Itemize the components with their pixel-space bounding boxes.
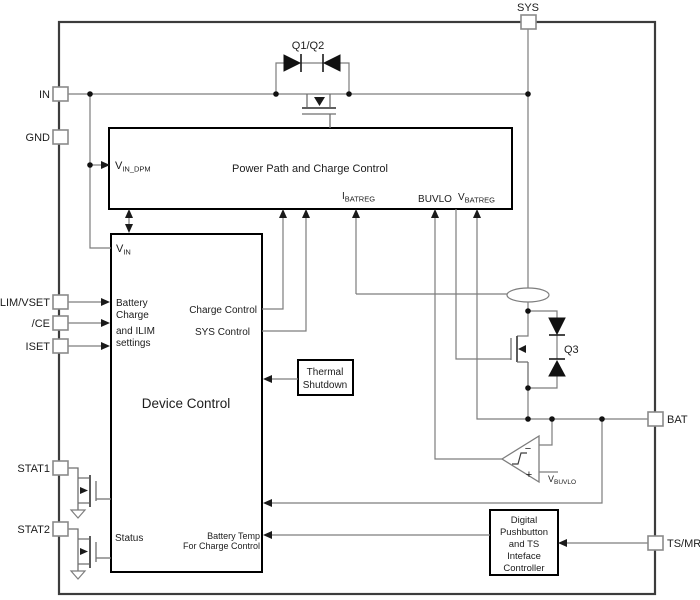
arrowhead-icon: [125, 224, 133, 233]
current-sense-ellipse-icon: [507, 288, 549, 302]
battery-temp-label-line2: For Charge Control: [183, 541, 260, 551]
pin-stat1: [53, 461, 68, 475]
sys-control-wire: [262, 213, 306, 331]
settings-label-line3: and ILIM: [116, 326, 155, 337]
pin-label-iset: ISET: [26, 341, 51, 353]
q3-gate-wire: [456, 209, 511, 359]
pin-label-ce: /CE: [32, 318, 50, 330]
junction-dot: [525, 385, 531, 391]
pin-label-gnd: GND: [26, 132, 51, 144]
junction-dot: [599, 416, 605, 422]
junction-dot: [87, 91, 93, 97]
stat2-transistor-icon: [68, 529, 111, 579]
vin-wire: [90, 94, 111, 248]
mosfet-arrow-icon: [314, 97, 325, 106]
arrowhead-icon: [101, 298, 110, 306]
pin-label-ilim-vset: ILIM/VSET: [0, 297, 50, 309]
mosfet-stubs: [68, 529, 89, 571]
arrowhead-icon: [473, 209, 481, 218]
q1-q2-label: Q1/Q2: [292, 40, 324, 52]
diode-icon: [549, 318, 565, 334]
digital-label-line1: Digital: [511, 515, 537, 526]
diagram-canvas: − +: [0, 0, 700, 600]
pin-ilim-vset: [53, 295, 68, 309]
pin-label-in: IN: [39, 89, 50, 101]
mosfet-stubs: [68, 468, 89, 510]
pin-label-sys: SYS: [517, 2, 539, 14]
digital-label-line2: Pushbutton: [500, 527, 548, 538]
settings-label-line1: Battery: [116, 298, 148, 309]
buvlo-label: BUVLO: [418, 194, 452, 205]
junction-dot: [525, 308, 531, 314]
arrowhead-icon: [263, 375, 272, 383]
mosfet-gate: [302, 114, 336, 128]
power-path-title: Power Path and Charge Control: [232, 163, 388, 175]
digital-label-line3: and TS: [509, 539, 539, 550]
arrowhead-icon: [263, 499, 272, 507]
block-diagram: − +: [0, 0, 700, 600]
mosfet-source-stub: [517, 362, 528, 388]
arrowhead-icon: [302, 209, 310, 218]
q3-diode-chain-wire: [528, 311, 557, 419]
pin-sys: [521, 15, 536, 29]
junction-dot: [549, 416, 555, 422]
pin-bat: [648, 412, 663, 426]
arrowhead-icon: [101, 342, 110, 350]
buvlo-comparator-icon: − +: [502, 436, 539, 482]
digital-label-line4: Inteface: [507, 551, 541, 562]
mosfet-arrow-icon: [80, 548, 88, 555]
ground-icon: [71, 510, 85, 518]
settings-label-line4: settings: [116, 338, 150, 349]
mosfet-arrow-icon: [518, 345, 526, 353]
mosfet-gate: [96, 481, 111, 501]
junction-dot: [525, 91, 531, 97]
battery-temp-label-line1: Battery Temp: [207, 531, 260, 541]
arrowhead-icon: [431, 209, 439, 218]
pin-ce: [53, 316, 68, 330]
vbuvlo-label: VBUVLO: [548, 474, 576, 486]
q3-mosfet-icon: [511, 336, 528, 388]
q3-label: Q3: [564, 344, 579, 356]
junction-dot: [273, 91, 279, 97]
junction-dot: [87, 162, 93, 168]
digital-label-line5: Controller: [503, 563, 544, 574]
charge-control-label: Charge Control: [189, 305, 257, 316]
thermal-label-line2: Shutdown: [303, 380, 347, 391]
arrowhead-icon: [101, 319, 110, 327]
arrowhead-icon: [352, 209, 360, 218]
q1-q2-mosfet-icon: [302, 94, 336, 128]
diode-icon: [324, 55, 340, 71]
mosfet-gate: [96, 542, 111, 562]
comparator-minus-wire: [539, 419, 552, 445]
vbatreg-bat-rail-wire: [477, 213, 648, 419]
comparator-minus-sign: −: [525, 443, 531, 455]
ground-icon: [71, 571, 85, 579]
pin-label-stat2: STAT2: [17, 524, 50, 536]
status-label: Status: [115, 533, 143, 544]
pin-stat2: [53, 522, 68, 536]
comparator-plus-sign: +: [526, 469, 532, 481]
settings-label-line2: Charge: [116, 310, 149, 321]
pin-label-bat: BAT: [667, 414, 688, 426]
diode-icon: [284, 55, 300, 71]
buvlo-wire: [435, 213, 502, 459]
mosfet-arrow-icon: [80, 487, 88, 494]
pin-label-stat1: STAT1: [17, 463, 50, 475]
thermal-label-line1: Thermal: [307, 367, 344, 378]
pin-iset: [53, 339, 68, 353]
left-pin-wires: [68, 302, 102, 346]
junction-dot: [346, 91, 352, 97]
arrowhead-icon: [558, 539, 567, 547]
junction-dot: [525, 416, 531, 422]
arrowhead-icon: [279, 209, 287, 218]
pin-gnd: [53, 130, 68, 144]
pin-ts-mr: [648, 536, 663, 550]
device-control-title: Device Control: [142, 396, 231, 411]
sys-control-label: SYS Control: [195, 327, 250, 338]
arrowhead-icon: [263, 531, 272, 539]
charge-control-wire: [262, 213, 283, 309]
arrowhead-icon: [125, 209, 133, 218]
stat1-transistor-icon: [68, 468, 111, 518]
pin-in: [53, 87, 68, 101]
diode-icon: [549, 361, 565, 376]
ibatreg-wire: [356, 213, 507, 294]
comparator-triangle: [502, 436, 539, 482]
pin-label-ts-mr: TS/MR: [667, 538, 700, 550]
